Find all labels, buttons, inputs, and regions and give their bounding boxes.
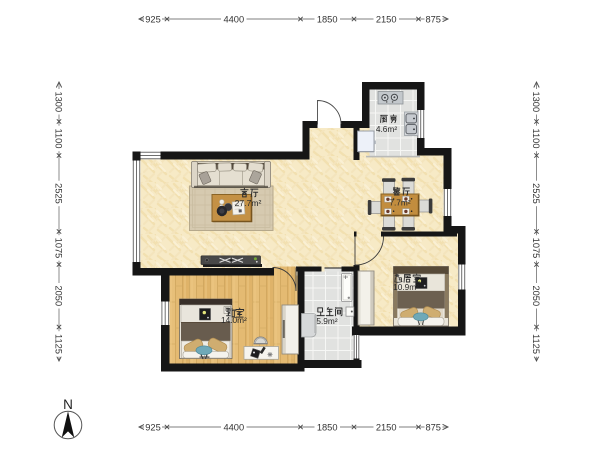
svg-text:N: N — [63, 397, 73, 412]
svg-text:27.7m²: 27.7m² — [235, 198, 262, 208]
svg-text:4400: 4400 — [223, 14, 244, 24]
svg-text:1125: 1125 — [531, 334, 541, 354]
svg-text:4400: 4400 — [223, 422, 244, 432]
svg-text:925: 925 — [145, 422, 161, 432]
svg-text:1075: 1075 — [531, 238, 541, 259]
svg-text:7.7m²: 7.7m² — [389, 197, 410, 207]
svg-text:2150: 2150 — [376, 422, 397, 432]
svg-text:1125: 1125 — [54, 334, 64, 354]
svg-text:925: 925 — [145, 14, 161, 24]
svg-text:14.0m²: 14.0m² — [221, 315, 247, 325]
svg-text:875: 875 — [425, 422, 441, 432]
svg-text:2525: 2525 — [54, 183, 64, 204]
svg-text:1075: 1075 — [54, 238, 64, 259]
svg-text:2050: 2050 — [54, 285, 64, 306]
svg-text:2525: 2525 — [531, 183, 541, 204]
svg-text:1300: 1300 — [54, 91, 64, 112]
svg-text:10.9m²: 10.9m² — [393, 282, 419, 292]
svg-text:875: 875 — [425, 14, 441, 24]
svg-text:1850: 1850 — [317, 422, 338, 432]
svg-text:1300: 1300 — [531, 91, 541, 112]
svg-text:4.6m²: 4.6m² — [376, 124, 397, 134]
svg-text:5.9m²: 5.9m² — [316, 316, 337, 326]
svg-text:2150: 2150 — [376, 14, 397, 24]
svg-text:1850: 1850 — [317, 14, 338, 24]
svg-text:2050: 2050 — [531, 285, 541, 306]
svg-text:1100: 1100 — [54, 129, 64, 149]
svg-text:1100: 1100 — [531, 129, 541, 149]
